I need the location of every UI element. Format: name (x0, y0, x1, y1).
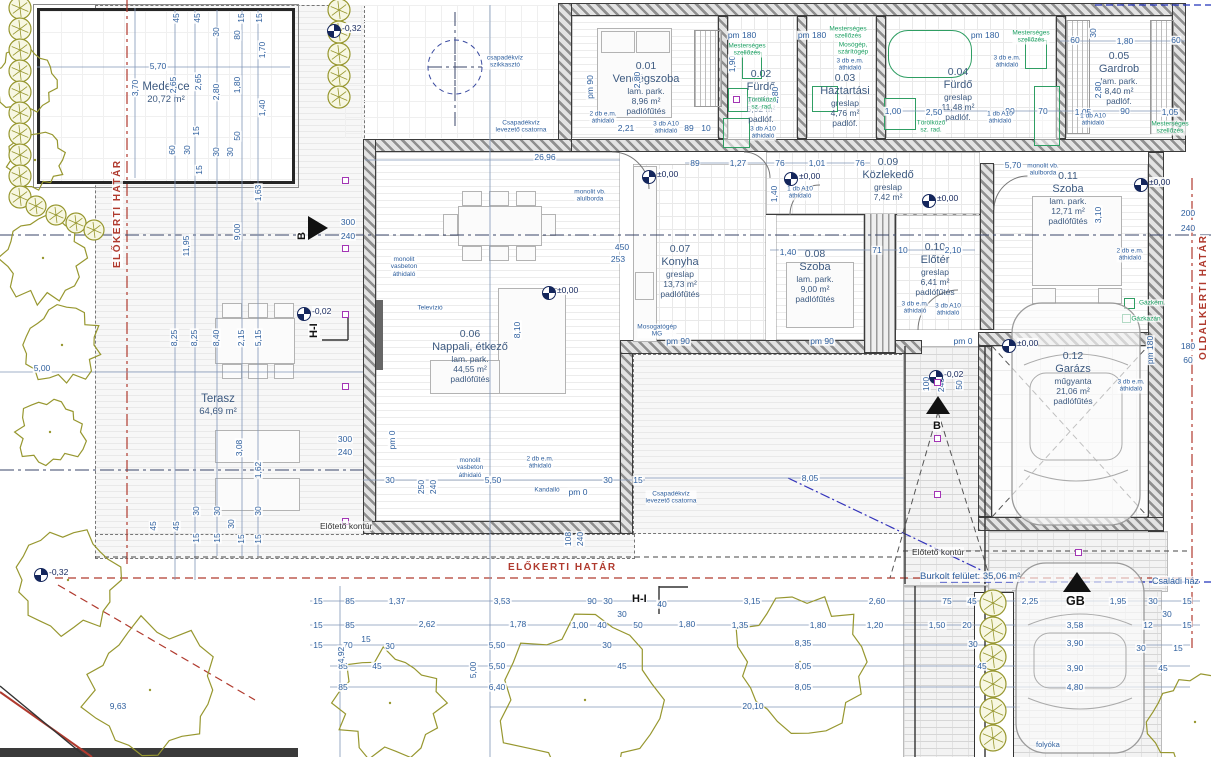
electrical-point (934, 379, 941, 386)
level-value: ±0,00 (657, 169, 678, 179)
dimension-label: 75 (941, 597, 952, 606)
dimension-label: 8,40 (212, 329, 221, 348)
construction-note: 3 db e.m.áthidaló (1117, 379, 1144, 394)
level-value: ±0,00 (1149, 177, 1170, 187)
room-label-line: 4,76 m² (820, 108, 870, 118)
bush-detail (19, 62, 20, 71)
room-label-line: padlófűtés (915, 287, 954, 297)
dimension-label: 6,40 (488, 683, 507, 692)
terrace-area: 64,69 m² (199, 406, 237, 418)
dimension-label: 80 (233, 29, 242, 40)
bush-detail (13, 71, 20, 76)
dimension-label: 8,05 (801, 474, 820, 483)
wall (363, 139, 376, 534)
bush-detail (20, 150, 27, 155)
pool-name: Medence (142, 79, 189, 93)
bush-detail (12, 4, 20, 8)
bush-detail (56, 215, 57, 223)
dimension-label: 30 (192, 505, 201, 516)
bush-detail (75, 215, 76, 223)
electrical-point (934, 435, 941, 442)
pool-label: Medence 20,72 m² (142, 79, 189, 105)
dimension-label: 85 (344, 621, 355, 630)
bush (9, 186, 31, 208)
dimension-label: 1,90 (728, 55, 737, 74)
tree-center (1194, 721, 1196, 723)
dimension-label: 240 (340, 232, 356, 241)
tree-center (42, 257, 44, 259)
note-line: Csapadékvíz (496, 120, 547, 127)
dimension-label: 3,90 (1066, 664, 1085, 673)
surface-paving (1012, 590, 1162, 757)
bush-detail (20, 134, 21, 143)
note-line: áthidaló (1117, 386, 1144, 393)
dimension-label: 15 (1172, 644, 1183, 653)
dimension-label: 30 (1135, 644, 1146, 653)
dimension-label: 3,90 (1066, 639, 1085, 648)
note-line: áthidaló (987, 118, 1013, 125)
furniture-item (516, 191, 536, 206)
surface-dark (0, 748, 298, 757)
bush-detail (20, 24, 27, 29)
dimension-label: 15 (312, 641, 323, 650)
dimension-label: 1,20 (866, 621, 885, 630)
note-line: 3 db e.m. (993, 55, 1020, 62)
dimension-label: 9,00 (233, 223, 242, 242)
note-line: áthidaló (391, 271, 417, 278)
fixture (1124, 298, 1135, 309)
note-line: áthidaló (787, 193, 813, 200)
dimension-label: 1,50 (928, 621, 947, 630)
construction-note: Csapadékvízlevezető csatorna (646, 491, 697, 506)
note-line: vasbeton (457, 464, 483, 471)
bush-detail (20, 3, 27, 8)
dimension-label: 1,01 (808, 159, 827, 168)
dimension-label: 253 (610, 255, 626, 264)
level-value: ±0,00 (799, 171, 820, 181)
bush-detail (49, 212, 56, 215)
bush-detail (56, 210, 62, 215)
dimension-label: 300 (337, 435, 353, 444)
bush (9, 60, 31, 82)
fixture (1122, 314, 1131, 323)
room-label-line: Szoba (1048, 183, 1087, 196)
room-label-line: lam. park. (432, 354, 508, 364)
dimension-label: 240 (429, 479, 438, 495)
furniture-item (274, 303, 294, 318)
room-label-line: 6,41 m² (915, 277, 954, 287)
dimension-label: pm 90 (586, 74, 595, 100)
bush-detail (13, 113, 20, 118)
room-label-line: 0.07 (660, 243, 699, 256)
dimension-label: 1,40 (258, 99, 267, 118)
furniture-item (222, 364, 242, 379)
note-line: áthidaló (993, 62, 1020, 69)
note-line: alulborda (574, 196, 605, 203)
note-line: szárítógép (838, 49, 868, 56)
room-label-line: Vendégszoba (613, 73, 680, 86)
construction-note: 3 db e.m.áthidaló (901, 301, 928, 316)
dimension-label: 1,35 (731, 621, 750, 630)
dimension-label: 4,80 (1066, 683, 1085, 692)
wall (978, 346, 992, 517)
note-line: áthidaló (1080, 120, 1106, 127)
bush-detail (20, 71, 21, 80)
dimension-label: 1,05 (1161, 108, 1180, 117)
dimension-label: 240 (576, 531, 585, 547)
dimension-label: 5,00 (469, 661, 478, 680)
note-line: levezető csatorna (496, 127, 547, 134)
section-hi-label: H-I (632, 593, 647, 605)
dimension-label: 30 (384, 642, 395, 651)
dimension-label: 60 (1182, 356, 1193, 365)
dimension-label: 45 (172, 520, 181, 531)
dimension-label: 15 (1181, 621, 1192, 630)
dimension-label: 30 (601, 641, 612, 650)
dimension-label: 1,00 (571, 621, 590, 630)
dimension-label: 2,62 (418, 620, 437, 629)
room-label-line: padlóf. (820, 118, 870, 128)
construction-note: 1 db A10áthidaló (987, 111, 1013, 126)
furniture-item (443, 214, 458, 236)
dimension-label: 60 (168, 144, 177, 155)
dimension-label: 180 (1180, 342, 1196, 351)
tree (81, 616, 213, 756)
dimension-label: 50 (955, 379, 964, 390)
room-label-line: 0.03 (820, 72, 870, 85)
terrace-label: Terasz 64,69 m² (199, 392, 237, 418)
dimension-label: 1,37 (388, 597, 407, 606)
dimension-label: 1,80 (678, 620, 697, 629)
note-line: monolit vb. (1027, 163, 1058, 170)
bush-detail (12, 151, 20, 155)
bush (26, 196, 46, 216)
dimension-label: pm 180 (970, 31, 1000, 40)
room-label-line: 0.02 (747, 68, 776, 81)
dimension-label: 76 (774, 159, 785, 168)
room-label-line: Fürdő (942, 79, 975, 92)
level-value: -0,32 (49, 567, 68, 577)
note-line: monolit vb. (574, 189, 605, 196)
dimension-label: 1,80 (809, 621, 828, 630)
room-label-0.12: 0.12Garázsműgyanta21,06 m²padlófűtés (1053, 350, 1092, 406)
bush-detail (20, 197, 28, 201)
room-label-0.06: 0.06Nappali, étkezőlam. park.44,55 m²pad… (432, 328, 508, 384)
dimension-label: 8,05 (794, 662, 813, 671)
bush (9, 39, 31, 61)
furniture-item (1098, 288, 1122, 304)
bush-detail (12, 46, 20, 50)
section-b-letter-west: B (296, 232, 308, 240)
note-line: Mosogatógép (637, 324, 676, 331)
dimension-label: pm 0 (953, 337, 974, 346)
dimension-label: 15 (312, 621, 323, 630)
section-b-arrow-west (308, 216, 328, 240)
dimension-label: 10 (700, 124, 711, 133)
front-boundary-label-left: ELŐKERTI HATÁR (112, 159, 123, 268)
dimension-label: 30 (213, 505, 222, 516)
construction-note: 2 db e.m.áthidaló (526, 456, 553, 471)
dimension-label: 30 (212, 146, 221, 157)
bush-detail (20, 50, 28, 54)
bush-detail (13, 134, 20, 139)
room-label-line: Nappali, étkező (432, 341, 508, 354)
dimension-label: 240 (1180, 224, 1196, 233)
bush-detail (36, 206, 37, 214)
north-arrow-gb-label: GB (1066, 594, 1085, 608)
bush-detail (35, 198, 36, 206)
dimension-label: 1,80 (1116, 37, 1135, 46)
dimension-label: 15 (192, 532, 201, 543)
electrical-point (733, 96, 740, 103)
electrical-point (342, 311, 349, 318)
bush (9, 102, 31, 124)
note-line: Kandalló (534, 486, 559, 493)
bush-detail (13, 176, 20, 181)
bush-detail (12, 67, 20, 71)
bush (9, 123, 31, 145)
bush-detail (20, 192, 27, 197)
bush-detail (70, 223, 76, 228)
dimension-label: 15 (1181, 597, 1192, 606)
bush-detail (20, 29, 28, 33)
surface-ground (345, 5, 559, 138)
note-line: áthidaló (589, 118, 616, 125)
dimension-label: 45 (193, 12, 202, 23)
bush (9, 144, 31, 166)
bush (9, 18, 31, 40)
wall (978, 517, 1164, 531)
room-label-line: padlófűtés (613, 106, 680, 116)
room-label-line: padlóf. (1099, 96, 1139, 106)
pool-area: 20,72 m² (142, 94, 189, 106)
dimension-label: 2,15 (237, 329, 246, 348)
tree-center (49, 431, 51, 433)
room-label-line: 8,96 m² (613, 96, 680, 106)
dimension-label: 30 (212, 26, 221, 37)
dimension-label: 3,15 (743, 597, 762, 606)
electrical-point (1075, 549, 1082, 556)
bush-detail (20, 8, 21, 17)
furniture-item (694, 30, 722, 107)
dimension-label: 15 (312, 597, 323, 606)
bush-detail (13, 50, 20, 55)
dimension-label: 300 (340, 218, 356, 227)
note-line: Mesterséges (728, 43, 765, 50)
dimension-label: 4,92 (337, 646, 346, 665)
bush-detail (12, 193, 20, 197)
bush-detail (20, 197, 21, 206)
bush-detail (69, 220, 76, 223)
level-marker-icon (327, 24, 341, 38)
wall (558, 139, 1186, 152)
bush (9, 0, 31, 19)
note-line: 1 db A10 (1080, 113, 1106, 120)
note-line: levezető csatorna (646, 498, 697, 505)
dimension-label: 50 (233, 130, 242, 141)
note-line: vasbeton (391, 263, 417, 270)
bush-detail (13, 92, 20, 97)
dimension-label: 89 (689, 159, 700, 168)
note-line: áthidaló (901, 308, 928, 315)
furniture-item (274, 364, 294, 379)
note-line: 3 db A10 (750, 126, 776, 133)
note-line: szikkasztó (487, 62, 523, 69)
bush-detail (20, 92, 28, 96)
bush-detail (20, 155, 28, 159)
dimension-label: 30 (1161, 610, 1172, 619)
section-hi-label-2: H-I (308, 323, 320, 338)
dimension-label: pm 180 (1146, 335, 1155, 365)
bush-detail (12, 25, 20, 29)
furniture-item (489, 191, 509, 206)
bush-detail (55, 207, 56, 215)
electrical-point (934, 491, 941, 498)
bush-detail (19, 83, 20, 92)
bush-detail (20, 8, 28, 12)
bush-detail (20, 176, 28, 180)
room-label-line: 21,06 m² (1053, 386, 1092, 396)
paved-surface-label: Burkolt felület: 35,06 m² (920, 571, 1020, 582)
dimension-label: 15 (360, 635, 371, 644)
dimension-label: 10 (897, 246, 908, 255)
dimension-label: 250 (417, 479, 426, 495)
room-label-0.11: 0.11Szobalam. park.12,71 m²padlófűtés (1048, 170, 1087, 226)
room-label-line: lam. park. (795, 274, 834, 284)
wall (620, 352, 633, 534)
dimension-label: 8,35 (794, 639, 813, 648)
bush-detail (20, 113, 21, 122)
room-label-line: 9,00 m² (795, 284, 834, 294)
note-line: 2 db e.m. (1116, 248, 1143, 255)
canopy-contour-label-1: Előtető kontúr (320, 521, 372, 531)
bush-detail (20, 176, 21, 185)
dimension-label: 85 (337, 683, 348, 692)
note-line: MG (637, 331, 676, 338)
bush-detail (93, 222, 94, 230)
section-b-letter-walkway: B (933, 420, 941, 432)
bush-detail (20, 92, 21, 101)
dimension-label: 2,80 (633, 71, 642, 90)
room-label-line: 0.08 (795, 248, 834, 261)
dimension-label: 30 (616, 610, 627, 619)
bush-detail (13, 197, 20, 202)
furniture-item (489, 246, 509, 261)
dimension-label: 1,00 (884, 107, 903, 116)
furniture-item (635, 272, 654, 300)
tree-center (34, 159, 36, 161)
room-label-0.01: 0.01Vendégszobalam. park.8,96 m²padlófűt… (613, 60, 680, 116)
furniture-item (633, 166, 657, 342)
fixture (1034, 86, 1060, 146)
dimension-label: 40 (596, 621, 607, 630)
note-line: 3 db e.m. (836, 58, 863, 65)
dimension-label: 1,27 (729, 159, 748, 168)
dimension-label: 5,50 (488, 662, 507, 671)
note-line: szellőzés (829, 33, 866, 40)
room-label-line: padlófűtés (1048, 216, 1087, 226)
dimension-label: 45 (371, 662, 382, 671)
room-label-line: greslap (820, 98, 870, 108)
room-label-line: 12,71 m² (1048, 206, 1087, 216)
bush-detail (12, 109, 20, 113)
construction-note: 1 db A10áthidaló (1080, 113, 1106, 128)
bush-detail (12, 172, 20, 176)
bush-detail (12, 88, 20, 92)
bush-detail (19, 146, 20, 155)
dimension-label: 450 (614, 243, 630, 252)
dimension-label: 8,05 (794, 683, 813, 692)
dimension-label: 20 (961, 621, 972, 630)
note-line: Gázkém. (1139, 299, 1165, 306)
note-line: 3 db A10 (935, 303, 961, 310)
dimension-label: 8,25 (170, 329, 179, 348)
tree (332, 647, 448, 757)
mep-note: Mesterségesszellőzés (1151, 121, 1188, 136)
bush-detail (20, 71, 28, 75)
bush-detail (29, 203, 36, 206)
dimension-label: 108 (564, 531, 573, 547)
dimension-label: 15 (237, 533, 246, 544)
furniture-item (462, 246, 482, 261)
level-marker-icon (1002, 339, 1016, 353)
mep-note: Mesterségesszellőzés (1012, 30, 1049, 45)
furniture-item (462, 191, 482, 206)
dimension-label: 1,78 (509, 620, 528, 629)
furniture-item (541, 214, 556, 236)
construction-note: Kandalló (534, 486, 559, 493)
dimension-label: 15 (237, 12, 246, 23)
dimension-label: 30 (227, 518, 236, 529)
note-line: Törölköző (748, 97, 777, 104)
room-label-line: 0.04 (942, 66, 975, 79)
construction-note: monolitvasbetonáthidaló (457, 457, 483, 479)
level-value: -0,32 (342, 23, 361, 33)
construction-note: monolit vb.alulborda (1027, 163, 1058, 178)
dimension-label: 1,40 (770, 185, 779, 204)
dimension-label: 30 (602, 476, 613, 485)
wall (558, 3, 572, 152)
room-label-line: padlófűtés (795, 294, 834, 304)
room-label-line: Szoba (795, 261, 834, 274)
surface-hedge (974, 592, 1014, 757)
dimension-label: 2,50 (925, 108, 944, 117)
dimension-label: 5,50 (488, 641, 507, 650)
mep-note: Törölközősz. rad. (917, 120, 946, 135)
dimension-label: 15 (632, 476, 643, 485)
dimension-label: 2,65 (169, 76, 178, 95)
room-label-line: greslap (862, 182, 913, 192)
bush-detail (56, 215, 63, 218)
bush-detail (13, 8, 20, 13)
bush (9, 81, 31, 103)
construction-note: 2 db e.m.áthidaló (589, 111, 616, 126)
dimension-label: pm 0 (568, 488, 589, 497)
room-label-line: Konyha (660, 256, 699, 269)
construction-note: Csapadékvízlevezető csatorna (496, 120, 547, 135)
note-line: 2 db e.m. (589, 111, 616, 118)
surface-terrace (95, 534, 635, 559)
shaft-wall (864, 205, 896, 353)
dimension-label: 30 (602, 597, 613, 606)
tree-center (584, 699, 586, 701)
level-value: -0,02 (312, 306, 331, 316)
room-label-line: lam. park. (1099, 76, 1139, 86)
level-marker-icon (922, 194, 936, 208)
dimension-label: 89 (683, 124, 694, 133)
note-line: Mesterséges (829, 26, 866, 33)
furniture-item (215, 430, 300, 463)
